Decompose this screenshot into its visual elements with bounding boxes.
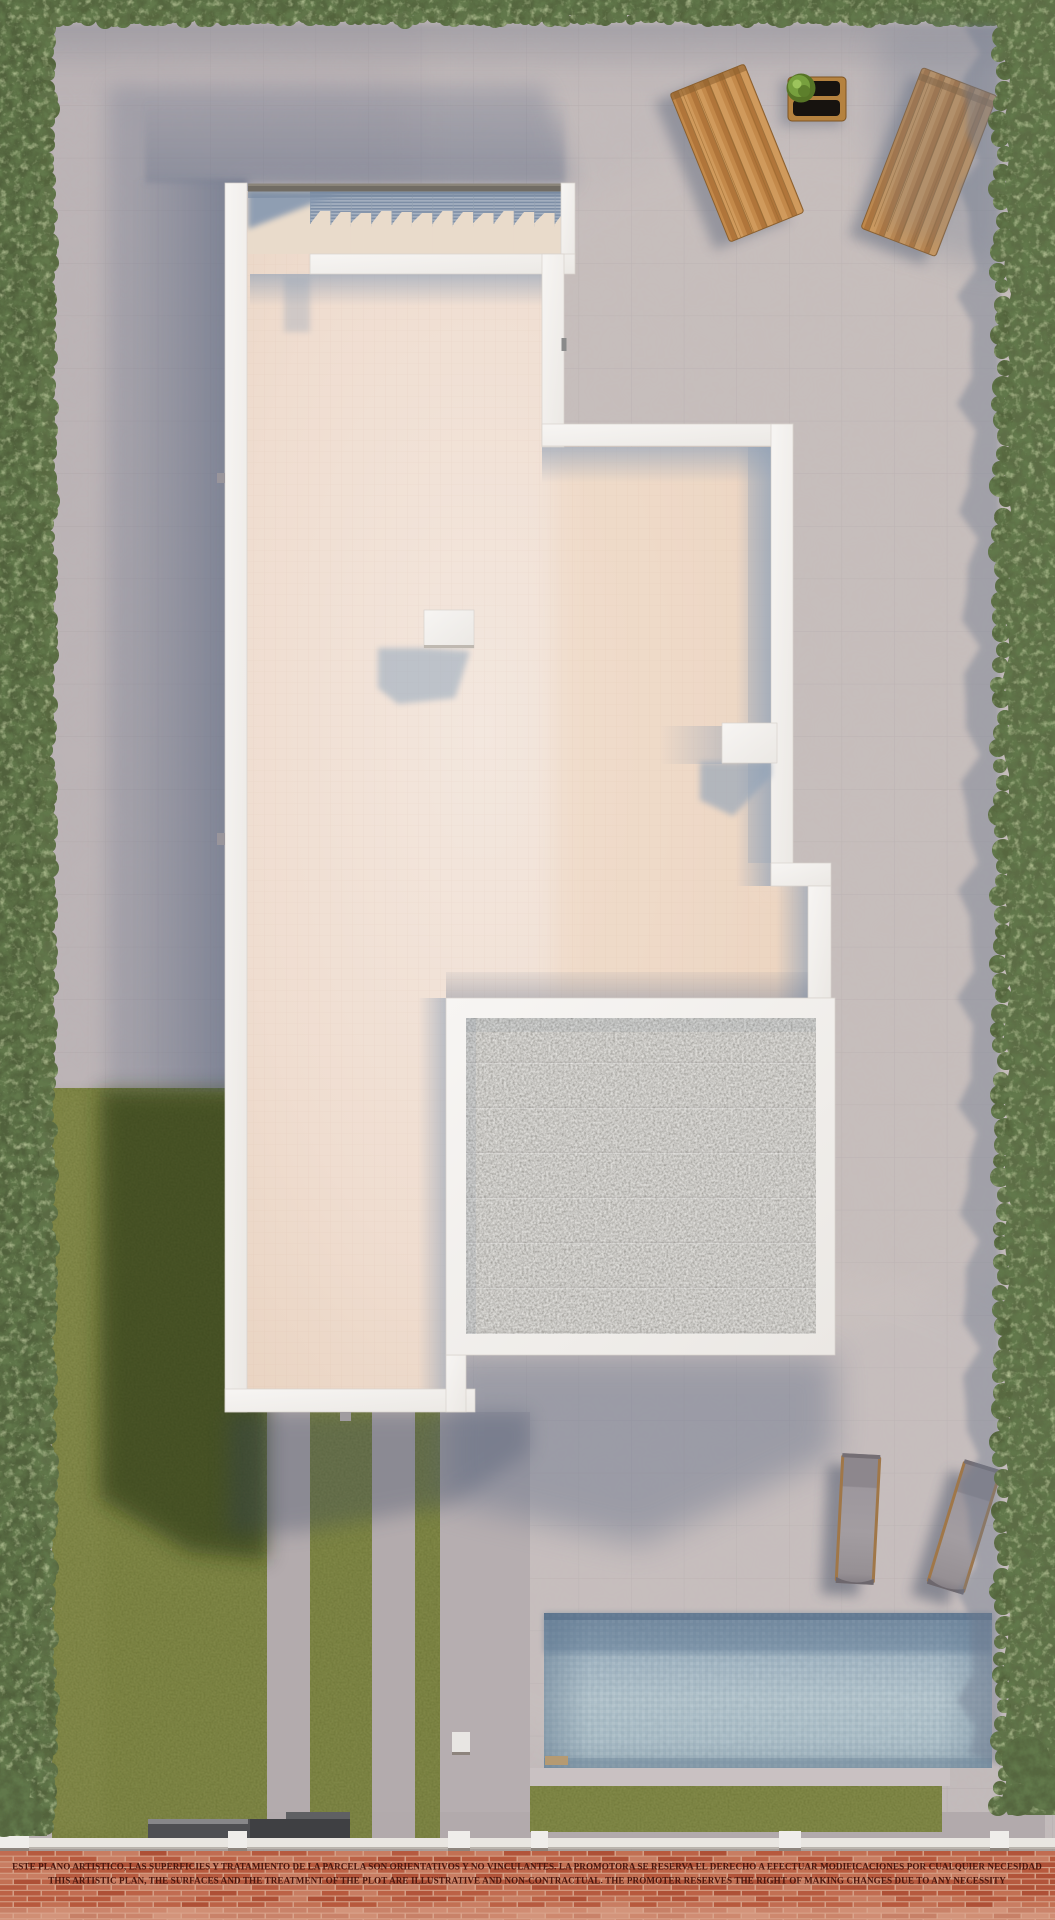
svg-text:THIS ARTISTIC PLAN, THE SURFAC: THIS ARTISTIC PLAN, THE SURFACES AND THE… [48,1876,1006,1886]
svg-text:ESTE PLANO ARTISTICO, LAS SUPE: ESTE PLANO ARTISTICO, LAS SUPERFICIES Y … [12,1862,1042,1872]
